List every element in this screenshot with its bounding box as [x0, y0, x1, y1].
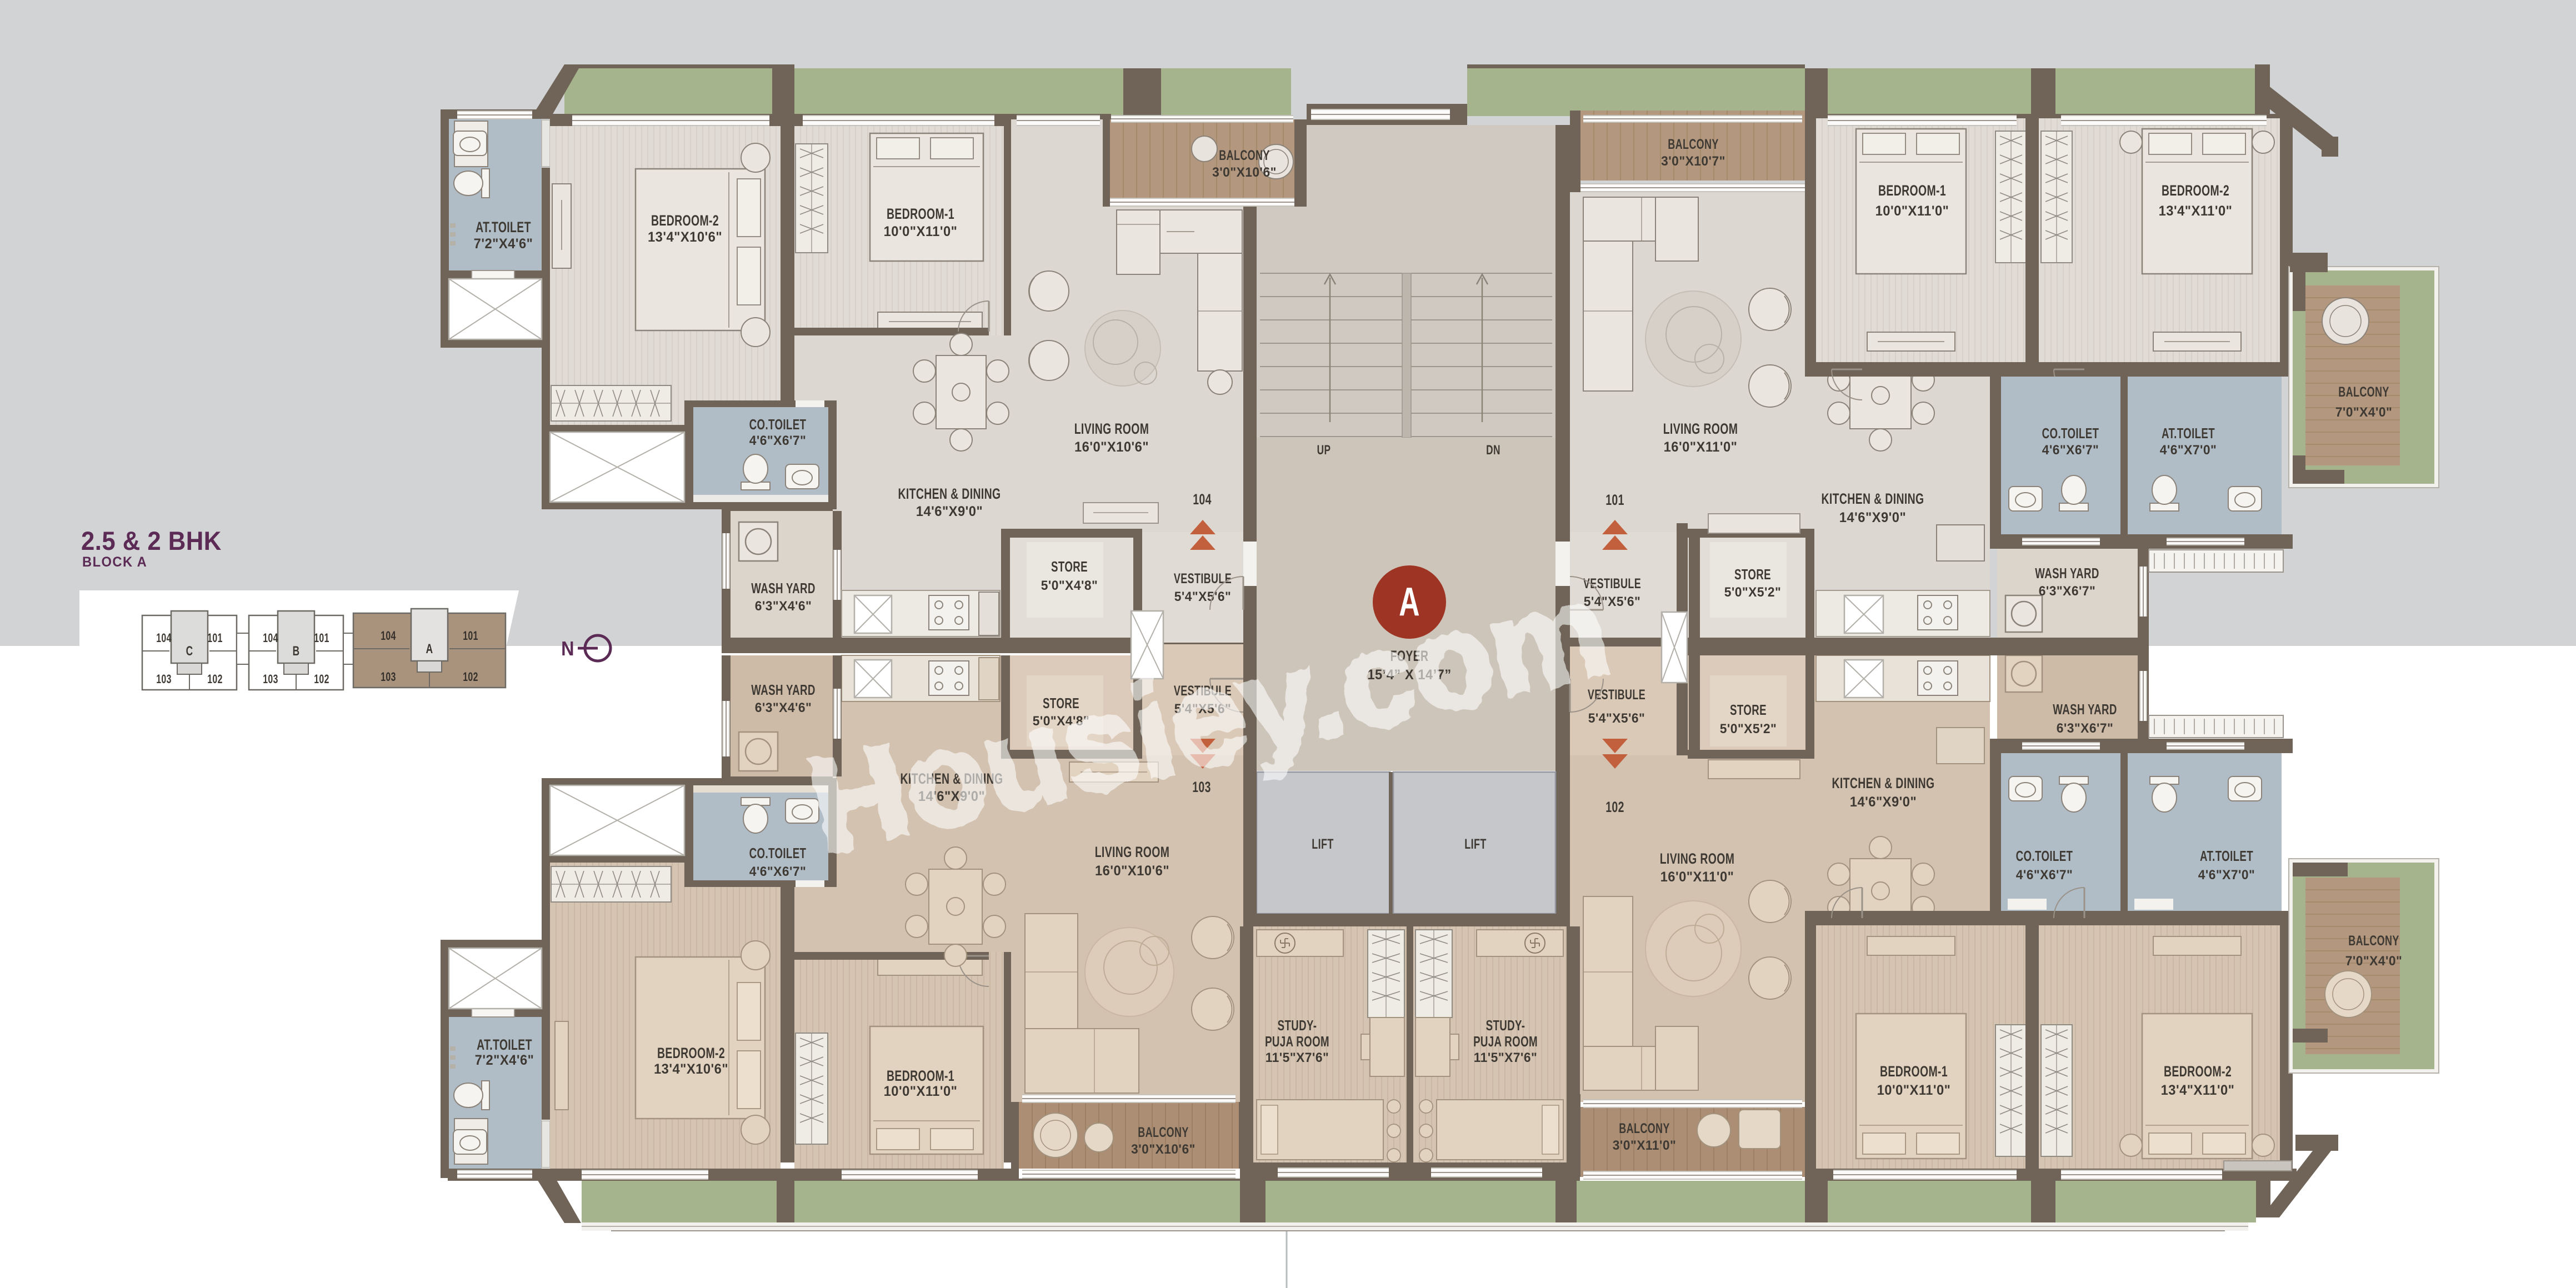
svg-text:AT.TOILET: AT.TOILET	[476, 219, 531, 235]
svg-text:KITCHEN & DINING: KITCHEN & DINING	[1822, 490, 1924, 507]
svg-text:16'0"X11'0": 16'0"X11'0"	[1664, 439, 1738, 455]
svg-text:UP: UP	[1317, 443, 1331, 457]
svg-text:104: 104	[1193, 491, 1212, 508]
svg-text:7'2"X4'6": 7'2"X4'6"	[474, 236, 533, 252]
svg-text:PUJA ROOM: PUJA ROOM	[1265, 1033, 1329, 1050]
svg-text:11'5"X7'6": 11'5"X7'6"	[1266, 1050, 1329, 1065]
svg-text:102: 102	[314, 673, 329, 686]
svg-text:CO.TOILET: CO.TOILET	[2016, 848, 2073, 864]
svg-text:A: A	[426, 642, 433, 656]
svg-text:16'0"X10'6": 16'0"X10'6"	[1074, 439, 1149, 455]
svg-text:BEDROOM-2: BEDROOM-2	[2162, 182, 2229, 199]
svg-text:5'4"X5'6": 5'4"X5'6"	[1588, 710, 1645, 725]
svg-text:BALCONY: BALCONY	[2348, 933, 2399, 949]
svg-text:10'0"X11'0": 10'0"X11'0"	[884, 224, 958, 239]
svg-text:BEDROOM-2: BEDROOM-2	[2164, 1063, 2232, 1080]
svg-text:7'0"X4'0": 7'0"X4'0"	[2335, 404, 2393, 419]
svg-text:WASH YARD: WASH YARD	[2053, 701, 2117, 718]
svg-text:4'6"X6'7": 4'6"X6'7"	[2042, 442, 2099, 457]
svg-text:13'4"X10'6": 13'4"X10'6"	[654, 1061, 728, 1077]
svg-text:102: 102	[207, 673, 223, 686]
svg-text:STORE: STORE	[1734, 566, 1771, 583]
svg-text:104: 104	[381, 630, 396, 643]
svg-text:5'0"X5'2": 5'0"X5'2"	[1724, 584, 1782, 599]
svg-text:101: 101	[207, 632, 223, 645]
svg-text:101: 101	[1605, 492, 1624, 508]
svg-text:104: 104	[263, 632, 278, 645]
svg-text:WASH YARD: WASH YARD	[2035, 565, 2099, 582]
svg-text:14'6"X9'0": 14'6"X9'0"	[1839, 510, 1906, 525]
svg-text:5'0"X4'8": 5'0"X4'8"	[1041, 578, 1098, 593]
svg-text:STORE: STORE	[1051, 558, 1088, 575]
svg-text:BLOCK A: BLOCK A	[82, 554, 147, 570]
svg-text:AT.TOILET: AT.TOILET	[2200, 848, 2253, 864]
svg-text:LIVING ROOM: LIVING ROOM	[1074, 420, 1149, 437]
svg-text:BALCONY: BALCONY	[2338, 384, 2389, 400]
svg-text:4'6"X7'0": 4'6"X7'0"	[2160, 442, 2217, 457]
svg-text:BEDROOM-2: BEDROOM-2	[657, 1045, 725, 1061]
svg-text:6'3"X4'6": 6'3"X4'6"	[755, 700, 812, 715]
svg-text:LIVING ROOM: LIVING ROOM	[1660, 850, 1735, 867]
svg-text:STUDY-: STUDY-	[1278, 1017, 1317, 1034]
svg-text:STUDY-: STUDY-	[1486, 1017, 1525, 1034]
svg-text:BEDROOM-1: BEDROOM-1	[887, 1068, 954, 1084]
svg-text:10'0"X11'0": 10'0"X11'0"	[1877, 1082, 1951, 1098]
svg-text:2.5 & 2 BHK: 2.5 & 2 BHK	[81, 527, 222, 556]
svg-text:13'4"X11'0": 13'4"X11'0"	[2159, 203, 2233, 219]
svg-text:103: 103	[381, 671, 396, 684]
svg-text:BALCONY: BALCONY	[1619, 1120, 1669, 1136]
svg-text:BEDROOM-2: BEDROOM-2	[651, 212, 719, 229]
svg-text:13'4"X10'6": 13'4"X10'6"	[648, 229, 722, 245]
svg-text:BALCONY: BALCONY	[1138, 1124, 1188, 1140]
svg-text:6'3"X6'7": 6'3"X6'7"	[2057, 720, 2114, 735]
svg-text:11'5"X7'6": 11'5"X7'6"	[1474, 1050, 1537, 1065]
svg-text:WASH YARD: WASH YARD	[751, 681, 816, 698]
svg-text:3'0"X10'6": 3'0"X10'6"	[1212, 164, 1277, 179]
svg-text:7'2"X4'6": 7'2"X4'6"	[475, 1053, 534, 1068]
svg-text:101: 101	[463, 630, 478, 643]
svg-text:LIFT: LIFT	[1312, 836, 1334, 852]
svg-text:6'3"X4'6": 6'3"X4'6"	[755, 598, 812, 613]
svg-text:DN: DN	[1486, 443, 1500, 457]
svg-text:AT.TOILET: AT.TOILET	[2162, 425, 2215, 442]
svg-text:14'6"X9'0": 14'6"X9'0"	[916, 504, 983, 519]
svg-text:CO.TOILET: CO.TOILET	[2042, 425, 2099, 442]
svg-text:14'6"X9'0": 14'6"X9'0"	[1850, 794, 1917, 810]
svg-text:CO.TOILET: CO.TOILET	[749, 416, 807, 433]
svg-text:WASH YARD: WASH YARD	[751, 580, 816, 597]
svg-text:6'3"X6'7": 6'3"X6'7"	[2039, 583, 2096, 598]
svg-text:LIFT: LIFT	[1464, 836, 1487, 852]
svg-text:BEDROOM-1: BEDROOM-1	[1880, 1063, 1948, 1080]
svg-text:BEDROOM-1: BEDROOM-1	[887, 206, 954, 222]
svg-text:BALCONY: BALCONY	[1219, 147, 1269, 163]
svg-text:16'0"X10'6": 16'0"X10'6"	[1095, 863, 1169, 879]
svg-text:PUJA ROOM: PUJA ROOM	[1473, 1033, 1538, 1050]
svg-text:103: 103	[263, 673, 278, 686]
svg-text:10'0"X11'0": 10'0"X11'0"	[884, 1084, 958, 1099]
svg-text:LIVING ROOM: LIVING ROOM	[1663, 420, 1738, 437]
svg-text:101: 101	[314, 632, 329, 645]
svg-text:3'0"X10'7": 3'0"X10'7"	[1661, 153, 1725, 168]
svg-text:4'6"X6'7": 4'6"X6'7"	[749, 433, 807, 448]
svg-text:KITCHEN & DINING: KITCHEN & DINING	[898, 485, 1001, 502]
svg-text:CO.TOILET: CO.TOILET	[749, 845, 807, 861]
svg-text:LIVING ROOM: LIVING ROOM	[1095, 844, 1170, 860]
svg-text:N: N	[561, 638, 574, 660]
svg-text:4'6"X7'0": 4'6"X7'0"	[2198, 867, 2255, 882]
svg-text:4'6"X6'7": 4'6"X6'7"	[2016, 867, 2073, 882]
svg-text:16'0"X11'0": 16'0"X11'0"	[1660, 869, 1734, 885]
svg-text:4'6"X6'7": 4'6"X6'7"	[749, 864, 807, 879]
svg-text:5'4"X5'6": 5'4"X5'6"	[1174, 589, 1232, 604]
svg-text:10'0"X11'0": 10'0"X11'0"	[1875, 203, 1949, 219]
svg-text:AT.TOILET: AT.TOILET	[477, 1036, 532, 1053]
svg-text:STORE: STORE	[1730, 701, 1767, 718]
svg-text:3'0"X11'0": 3'0"X11'0"	[1613, 1137, 1676, 1152]
svg-text:104: 104	[156, 632, 172, 645]
svg-text:3'0"X10'6": 3'0"X10'6"	[1131, 1141, 1196, 1156]
svg-text:102: 102	[1605, 799, 1624, 815]
svg-text:C: C	[186, 644, 193, 658]
svg-text:5'0"X5'2": 5'0"X5'2"	[1720, 721, 1777, 736]
svg-text:KITCHEN & DINING: KITCHEN & DINING	[1832, 775, 1935, 791]
svg-text:B: B	[293, 644, 300, 658]
svg-text:BALCONY: BALCONY	[1668, 136, 1718, 152]
svg-text:7'0"X4'0": 7'0"X4'0"	[2345, 953, 2403, 968]
svg-text:BEDROOM-1: BEDROOM-1	[1878, 182, 1946, 199]
svg-text:103: 103	[156, 673, 172, 686]
svg-text:13'4"X11'0": 13'4"X11'0"	[2161, 1082, 2235, 1098]
svg-text:102: 102	[463, 671, 478, 684]
